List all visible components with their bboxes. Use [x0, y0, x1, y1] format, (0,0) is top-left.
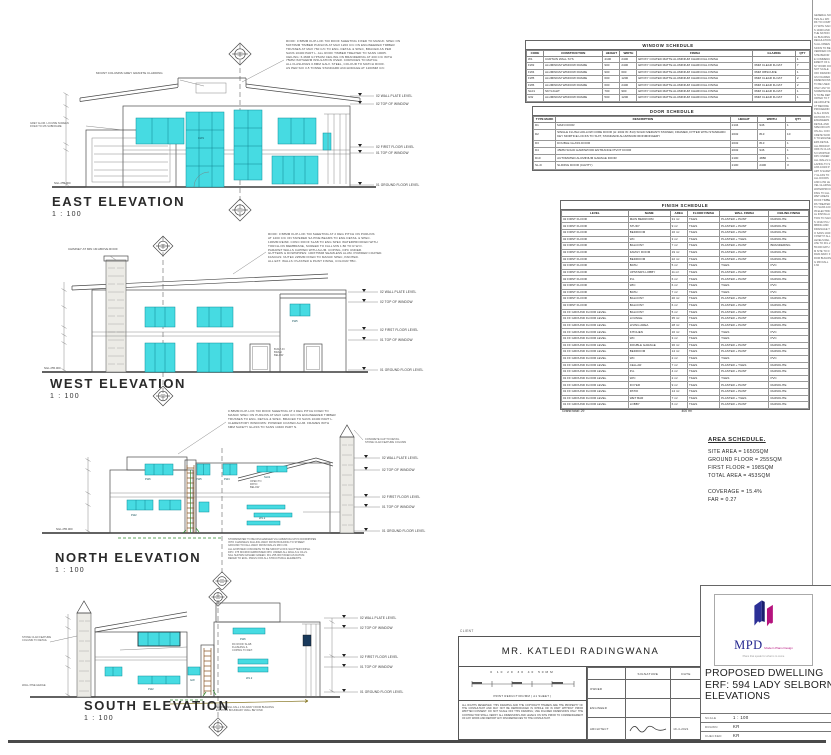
signature-header-row: SIGNATURE DATE — [588, 668, 702, 680]
owner-signature-cell — [625, 680, 671, 699]
drawn-value: KR — [733, 724, 740, 729]
table-cell: 11 m² — [670, 269, 687, 276]
table-cell: TILES — [687, 263, 719, 270]
checked-value: KR — [733, 733, 740, 738]
table-cell: PLASTER + PAINT — [720, 223, 769, 230]
table-cell: 01 FF GROUND FLOOR LEVEL — [562, 355, 629, 362]
table-cell: 5 m² — [670, 309, 687, 316]
north-bottom-notes: STORMWATER TO BE DISCHARGED VIA 110MM DI… — [228, 538, 316, 561]
architect-date: 19-4-2021 — [671, 718, 702, 741]
table-cell: PLASTER + TILES — [720, 362, 769, 369]
table-cell: 02 FIRST FLOOR — [562, 302, 629, 309]
svg-text:01 GROUND FLOOR LEVEL: 01 GROUND FLOOR LEVEL — [360, 690, 403, 694]
table-cell: 02 FIRST FLOOR — [562, 276, 629, 283]
table-cell: 4880 — [758, 155, 786, 162]
table-cell: PLASTER + TILES — [720, 236, 769, 243]
note-line: SITE AREA = 1650SQM — [708, 448, 782, 456]
table-cell: RHINOLITE — [769, 276, 809, 283]
mpd-logo-icon — [747, 598, 781, 628]
table-cell: WIC — [628, 283, 670, 290]
client-label: CLIENT — [460, 629, 474, 633]
table-cell: PLASTER + PAINT — [720, 389, 769, 396]
svg-text:01 TOP OF WINDOW: 01 TOP OF WINDOW — [376, 151, 409, 155]
table-cell: GW — [527, 95, 544, 101]
table-cell: DOUBLE GARAGE — [628, 342, 670, 349]
table-cell: 2032 — [730, 140, 758, 147]
table-cell: RHINOLITE — [769, 216, 809, 223]
finish-total-label: Grand total: 29 — [562, 409, 584, 413]
table-cell: 7 m² — [670, 289, 687, 296]
west-building — [72, 256, 346, 372]
svg-text:02 TOP OF WINDOW: 02 TOP OF WINDOW — [376, 102, 409, 106]
engineer-label: ENGINEER — [588, 699, 626, 718]
table-cell: RHINOLITE — [769, 223, 809, 230]
table-cell: PLASTER + PAINT — [720, 402, 769, 409]
table-cell: 01 FF GROUND FLOOR LEVEL — [562, 402, 629, 409]
svg-text:02 WALL PLATE LEVEL: 02 WALL PLATE LEVEL — [360, 616, 396, 620]
table-cell: PVC — [769, 355, 809, 362]
side-notes-strip: GENERAL NOTES ALL WORK TO COMPLY WITH SA… — [814, 14, 831, 580]
table-cell: 2 m² — [670, 355, 687, 362]
table-cell: PLASTER + PAINT — [720, 322, 769, 329]
table-cell: TILES — [687, 276, 719, 283]
south-mid-note: RC ROOF SLABFLASHING &COPING TO DET. — [232, 643, 253, 653]
table-cell: RHINOLITE — [769, 342, 809, 349]
north-elevation-title: NORTH ELEVATION — [55, 550, 201, 565]
table-cell: 1 — [786, 140, 811, 147]
table-cell: WC — [628, 236, 670, 243]
table-cell: 1200 — [620, 95, 637, 101]
table-cell: TILES — [687, 236, 719, 243]
table-cell: 28 m² — [670, 322, 687, 329]
south-left-note: STONE CLAD FEATURECOLUMN TO DETAIL — [22, 636, 51, 642]
project-line-2: ERF: 594 LADY SELBORNE — [705, 680, 831, 692]
level-marker: 02 FIRST FLOOR LEVEL — [348, 327, 418, 332]
table-cell: PLASTER + PAINT — [720, 256, 769, 263]
note-line: ALL EXT. WALLS: PLASTER & PAINT FINISH, … — [268, 260, 382, 264]
table-cell: RHINOLITE — [769, 269, 809, 276]
table-cell: 6 m² — [670, 283, 687, 290]
table-cell: TILES — [720, 355, 769, 362]
level-marker: 02 TOP OF WINDOW — [324, 625, 393, 630]
table-cell: 2032 — [730, 147, 758, 154]
table-cell: 2400 — [758, 162, 786, 169]
note-line: STONE CLAD FEATURE COLUMN — [365, 441, 406, 444]
table-cell: 946 — [758, 122, 786, 129]
table-cell: UPSTAIRS LOBBY — [628, 269, 670, 276]
east-elevation-panel: CW1 NGL 255.000 02 WALL PLATE LEVEL 02 T… — [28, 38, 468, 230]
logo-name: Modern Plans Design — [764, 646, 793, 650]
window-tag: FW5 — [292, 319, 298, 323]
west-elevation-scale: 1 : 100 — [50, 393, 80, 400]
table-cell: PLASTER + PAINT — [720, 342, 769, 349]
table-cell: PLASTER + PAINT — [720, 309, 769, 316]
table-cell: PLASTER + PAINT — [720, 316, 769, 323]
client-name: MR. KATLEDI RADINGWANA — [459, 637, 702, 667]
table-cell: 14 m² — [670, 349, 687, 356]
table-cell: 14 m² — [670, 389, 687, 396]
table-row: D445MM SOLID HARDWOOD ENTRANCE PIVOT DOO… — [534, 147, 811, 154]
level-marker: 02 WALL PLATE LEVEL — [354, 455, 418, 460]
area-schedule-lines: SITE AREA = 1650SQMGROUND FLOOR = 255SQM… — [708, 448, 782, 504]
note-line: GROUND FLOOR = 255SQM — [708, 456, 782, 464]
table-cell: BEDROOM — [628, 349, 670, 356]
ngl-label: NGL 255.000 — [54, 181, 71, 185]
table-cell: MAIN BEDROOM — [628, 216, 670, 223]
note-line: BELOW — [250, 486, 262, 489]
ngl-label: NGL 255.000 — [56, 527, 73, 531]
table-cell: 9 m² — [670, 382, 687, 389]
table-cell: PLASTER + PAINT — [720, 269, 769, 276]
table-row: D1MAIN DOOR21349461 — [534, 122, 811, 129]
table-row: 02 FIRST FLOORBATH7 m²TILESTILESPVC — [562, 289, 809, 296]
table-cell: W/C — [628, 375, 670, 382]
table-cell: 6 m² — [670, 276, 687, 283]
client-box: MR. KATLEDI RADINGWANA 0 10 20 30 40 50M… — [458, 636, 703, 740]
owner-date-cell — [671, 680, 702, 699]
table-cell: 2032 — [730, 130, 758, 141]
window-schedule: WINDOW SCHEDULE CODECONSTRUCTIONHEIGHTWI… — [525, 40, 811, 103]
table-cell: RHINOLITE — [769, 316, 809, 323]
table-cell: RHINOLITE — [769, 256, 809, 263]
ngl-label: NGL 255.000 — [44, 366, 61, 370]
door-schedule: DOOR SCHEDULE TYPE MARKDESCRIPTIONHEIGHT… — [532, 106, 812, 171]
table-cell: 01 FF GROUND FLOOR LEVEL — [562, 362, 629, 369]
east-elevation-scale: 1 : 100 — [52, 211, 82, 218]
table-row: 02 FIRST FLOORWC3 m²TILESPLASTER + TILES… — [562, 236, 809, 243]
table-cell: TILES — [687, 322, 719, 329]
window-schedule-title: WINDOW SCHEDULE — [526, 41, 810, 50]
table-cell: 31 m² — [670, 216, 687, 223]
table-cell: PVC — [769, 283, 809, 290]
table-cell: D2 — [534, 130, 556, 141]
table-cell: TILES — [687, 230, 719, 237]
svg-text:02 TOP OF WINDOW: 02 TOP OF WINDOW — [360, 626, 393, 630]
table-cell: 01 FF GROUND FLOOR LEVEL — [562, 322, 629, 329]
level-marker: 01 GROUND FLOOR LEVEL — [354, 528, 425, 533]
table-cell: PVC — [769, 329, 809, 336]
north-dim-string — [86, 457, 91, 533]
logo-tagline: Plans that speak for what is to come — [715, 655, 812, 658]
table-cell: FOYER — [628, 382, 670, 389]
table-cell: 01 FF GROUND FLOOR LEVEL — [562, 342, 629, 349]
table-cell: TILES — [687, 402, 719, 409]
signature-table: SIGNATURE DATE OWNER ENGINEER — [587, 667, 702, 739]
table-row: SL-DSLIDING DOOR (CAVITY)210024003 — [534, 162, 811, 169]
window-tag: SL01 — [264, 475, 271, 479]
north-top-notes: 0.58MM KLIP-LOK 700 ROOF SHEETING AT 2 D… — [228, 410, 336, 429]
note-line: FIRST FLOOR = 198SQM — [708, 464, 782, 472]
table-cell: LOBBY — [628, 402, 670, 409]
table-cell: TILES — [687, 382, 719, 389]
table-cell: KITCHEN — [628, 329, 670, 336]
table-cell: 02 FIRST FLOOR — [562, 230, 629, 237]
window-tag: GW — [190, 678, 195, 682]
table-row: 02 FIRST FLOORSTUDY9 m²TILESPLASTER + PA… — [562, 223, 809, 230]
table-cell: TILES — [687, 249, 719, 256]
door-schedule-title: DOOR SCHEDULE — [533, 107, 811, 116]
table-cell: TILES — [720, 336, 769, 343]
table-cell: PLASTER + PAINT — [720, 369, 769, 376]
scale-bar-ruler — [468, 681, 578, 687]
level-marker: 02 FIRST FLOOR LEVEL — [350, 144, 414, 149]
table-cell: TILES — [687, 296, 719, 303]
table-cell: MAIN DOOR — [556, 122, 731, 129]
table-cell: 01 FF GROUND FLOOR LEVEL — [562, 316, 629, 323]
table-cell: 02 FIRST FLOOR — [562, 289, 629, 296]
table-cell: 6 m² — [670, 402, 687, 409]
scale-bar-caption: PRINT REDUCTION/MM ( A1 SHEET ) — [459, 694, 586, 698]
table-cell: 01 FF GROUND FLOOR LEVEL — [562, 349, 629, 356]
south-elevation-panel: FW2 FW6 W1.2 GW 02 WALL PLATE LEVEL 02 T… — [20, 588, 470, 750]
table-cell: 45MM SOLID HARDWOOD ENTRANCE PIVOT DOOR — [556, 147, 731, 154]
svg-text:02 FIRST FLOOR LEVEL: 02 FIRST FLOOR LEVEL — [360, 655, 398, 659]
table-cell: 2100 — [730, 155, 758, 162]
table-cell: 36 m² — [670, 342, 687, 349]
window-tag: FW2 — [148, 687, 154, 691]
window-tag: W1.2 — [246, 676, 253, 680]
table-row: 01 FF GROUND FLOOR LEVELWC2 m²TILESTILES… — [562, 355, 809, 362]
table-cell: 01 FF GROUND FLOOR LEVEL — [562, 382, 629, 389]
level-marker: 01 TOP OF WINDOW — [348, 337, 413, 342]
svg-text:02 TOP OF WINDOW: 02 TOP OF WINDOW — [382, 468, 415, 472]
table-cell: BEDROOM — [628, 256, 670, 263]
table-cell: 20 m² — [670, 296, 687, 303]
table-cell: 19 m² — [670, 249, 687, 256]
table-cell: BALCONY — [628, 302, 670, 309]
table-cell: 02 FIRST FLOOR — [562, 283, 629, 290]
project-title: PROPOSED DWELLING ERF: 594 LADY SELBORNE… — [705, 668, 831, 703]
table-row: 02 FIRST FLOORMAIN BEDROOM31 m²TILESPLAS… — [562, 216, 809, 223]
table-cell: STUDY — [628, 223, 670, 230]
table-cell: RHINOLITE — [769, 402, 809, 409]
svg-text:02 FIRST FLOOR LEVEL: 02 FIRST FLOOR LEVEL — [380, 328, 418, 332]
table-cell: PLASTER + PAINT — [720, 243, 769, 250]
table-cell: 7 m² — [670, 395, 687, 402]
table-row: 01 FF GROUND FLOOR LEVELFOYER9 m²TILESPL… — [562, 382, 809, 389]
level-marker: 02 WALL PLATE LEVEL — [324, 615, 396, 620]
table-cell: 16 m² — [670, 329, 687, 336]
table-row: 01 FF GROUND FLOOR LEVELLIVING AREA28 m²… — [562, 322, 809, 329]
west-callout: CHIMNEY AT MIN 1M ABOVE ROOF — [68, 247, 118, 251]
table-cell: AUTOMATED ALUMINIUM GARAGE DOOR — [556, 155, 731, 162]
level-marker: 02 FIRST FLOOR LEVEL — [324, 654, 398, 659]
table-cell: 1 — [795, 95, 809, 101]
table-cell: P.A. — [628, 369, 670, 376]
checked-label: CHECKED — [705, 734, 722, 738]
east-notes: ROOF: 0.58MM KLIP-LOK 700 ROOF SHEETING … — [286, 40, 400, 71]
table-row: 02 FIRST FLOORBEDROOM16 m²TILESPLASTER +… — [562, 230, 809, 237]
note-line: COPING TO DET. — [232, 649, 253, 652]
svg-text:01 TOP OF WINDOW: 01 TOP OF WINDOW — [360, 665, 393, 669]
finish-total-area: 400 m² — [682, 409, 693, 413]
table-row: 01 FF GROUND FLOOR LEVELW/C2 m²TILESTILE… — [562, 375, 809, 382]
table-cell: TILES — [687, 302, 719, 309]
table-cell: TILES — [720, 329, 769, 336]
print-scale-cell: 0 10 20 30 40 50MM PRINT REDUCTION/MM ( … — [459, 667, 587, 739]
level-marker: 02 TOP OF WINDOW — [354, 467, 415, 472]
east-elevation-title: EAST ELEVATION — [52, 194, 185, 209]
scale-value: 1 : 100 — [733, 715, 749, 720]
table-row: 02 FIRST FLOORBEDROOM22 m²TILESPLASTER +… — [562, 256, 809, 263]
table-cell: BATH — [628, 263, 670, 270]
table-cell: RHINOLITE — [769, 389, 809, 396]
table-cell: 01 FF GROUND FLOOR LEVEL — [562, 329, 629, 336]
table-cell: 35 m² — [670, 316, 687, 323]
table-cell: WC — [628, 336, 670, 343]
table-row: D10AUTOMATED ALUMINIUM GARAGE DOOR210048… — [534, 155, 811, 162]
table-cell: 10 — [786, 130, 811, 141]
engineer-signature-cell — [625, 699, 671, 718]
table-cell: 2 m² — [670, 375, 687, 382]
table-row: GWALUMINIUM WINDOW FRAME5001200EPOXY COA… — [527, 95, 810, 101]
table-cell: TILES — [687, 349, 719, 356]
table-cell: 813 — [758, 130, 786, 141]
table-cell: 7 m² — [670, 362, 687, 369]
table-cell: PLASTER + PAINT — [720, 230, 769, 237]
table-cell: 1 — [786, 147, 811, 154]
table-cell: TILES — [687, 216, 719, 223]
west-dim-string — [62, 282, 67, 372]
note-line: FIXED TO MS SUBFRAME — [30, 125, 69, 128]
table-cell: PVC — [769, 375, 809, 382]
west-notes: ROOF: 0.58MM KLIP-LOK 700 SHEETING AT 2 … — [268, 233, 382, 264]
table-cell: PLASTER + PAINT — [720, 249, 769, 256]
table-cell: TILES — [687, 223, 719, 230]
table-cell: 01 FF GROUND FLOOR LEVEL — [562, 389, 629, 396]
table-row: 02 FIRST FLOORUPSTAIRS LOBBY11 m²TILESPL… — [562, 269, 809, 276]
engineer-date-cell — [671, 699, 702, 718]
table-row: 02 FIRST FLOORFAMILY ROOM19 m²TILESPLAST… — [562, 249, 809, 256]
drawing-sheet: CW1 NGL 255.000 02 WALL PLATE LEVEL 02 T… — [0, 0, 831, 755]
table-cell: 01 FF GROUND FLOOR LEVEL — [562, 375, 629, 382]
table-row: 01 FF GROUND FLOOR LEVELPATIO14 m²TILESP… — [562, 389, 809, 396]
table-cell: RHINOLITE — [769, 382, 809, 389]
table-cell: D1 — [534, 122, 556, 129]
window-tag: W1.2 — [259, 516, 266, 520]
table-cell: TILES — [687, 369, 719, 376]
svg-text:02 FIRST FLOOR LEVEL: 02 FIRST FLOOR LEVEL — [376, 145, 414, 149]
note-line: TOTAL AREA = 453SQM — [708, 472, 782, 480]
table-cell: PVC — [769, 263, 809, 270]
empty-header — [588, 668, 626, 680]
table-cell: 02 FIRST FLOOR — [562, 269, 629, 276]
table-row: 02 FIRST FLOORBATH5 m²TILESTILESPVC — [562, 263, 809, 270]
table-cell: PLASTER + TILES — [720, 395, 769, 402]
finish-schedule-title: FINISH SCHEDULE — [561, 201, 809, 210]
table-cell: TILES — [687, 289, 719, 296]
table-cell: 02 FIRST FLOOR — [562, 223, 629, 230]
south-building — [77, 601, 320, 697]
table-cell: 813 — [758, 140, 786, 147]
sheet-right-border — [812, 0, 813, 585]
svg-text:01 GROUND FLOOR LEVEL: 01 GROUND FLOOR LEVEL — [376, 183, 419, 187]
table-cell: 6 m² — [670, 302, 687, 309]
table-cell: RHINOLITE — [769, 249, 809, 256]
scale-bar-numbers: 0 10 20 30 40 50MM — [459, 670, 586, 674]
owner-row: OWNER — [588, 680, 702, 699]
table-row: 01 FF GROUND FLOOR LEVELWC3 m²TILESTILES… — [562, 336, 809, 343]
table-cell: TILES — [720, 263, 769, 270]
table-cell: 2100 — [730, 162, 758, 169]
sheet-bottom-border — [8, 740, 826, 743]
table-cell: 01 FF GROUND FLOOR LEVEL — [562, 395, 629, 402]
table-cell: 02 FIRST FLOOR — [562, 216, 629, 223]
table-cell: 02 FIRST FLOOR — [562, 256, 629, 263]
table-cell: PLASTER + PAINT — [720, 349, 769, 356]
signature-scribble — [628, 723, 668, 735]
note-line: FAR = 0.27 — [708, 496, 782, 504]
table-cell: PLASTER + PAINT — [720, 382, 769, 389]
svg-text:01 TOP OF WINDOW: 01 TOP OF WINDOW — [382, 505, 415, 509]
table-cell: 2134 — [730, 122, 758, 129]
note-line: BELOW — [274, 354, 284, 357]
table-cell: RHINOLITE — [769, 322, 809, 329]
level-marker: 01 TOP OF WINDOW — [350, 150, 409, 155]
architect-row: ARCHITECT 19-4-2021 — [588, 718, 702, 741]
window-tag: FW4 — [224, 477, 230, 481]
table-cell: 500 — [603, 95, 620, 101]
table-row: 02 FIRST FLOORBALCONY6 m²TILESPLASTER + … — [562, 302, 809, 309]
level-marker: 02 TOP OF WINDOW — [348, 299, 413, 304]
table-row: 01 FF GROUND FLOOR LEVELBALCONY5 m²TILES… — [562, 309, 809, 316]
table-cell: TILES — [687, 389, 719, 396]
south-elevation-scale: 1 : 100 — [84, 715, 114, 722]
table-row: 02 FIRST FLOORBALCONY7 m²TILESPLASTER + … — [562, 243, 809, 250]
table-cell: FAMILY ROOM — [628, 249, 670, 256]
scale-label: SCALE — [705, 716, 716, 720]
level-marker: 02 FIRST FLOOR LEVEL — [354, 494, 420, 499]
note-line: COLUMN TO DETAIL — [22, 639, 51, 642]
table-cell: 01 FF GROUND FLOOR LEVEL — [562, 369, 629, 376]
window-tag: CW1 — [198, 136, 204, 140]
level-marker: 02 WALL PLATE LEVEL — [350, 93, 412, 98]
svg-text:02 WALL PLATE LEVEL: 02 WALL PLATE LEVEL — [382, 456, 418, 460]
north-right-note: OPEN TOPATIOBELOW — [250, 480, 262, 490]
south-elevation-drawing: FW2 FW6 W1.2 GW 02 WALL PLATE LEVEL 02 T… — [20, 588, 470, 750]
table-row: 01 FF GROUND FLOOR LEVELLOBBY6 m²TILESPL… — [562, 402, 809, 409]
table-cell: SL-D — [534, 162, 556, 169]
table-cell: ALUMINIUM WINDOW FRAME — [543, 95, 602, 101]
table-cell: BALCONY — [628, 243, 670, 250]
logo-box: MPDModern Plans Design Plans that speak … — [714, 594, 813, 666]
east-left-note: GREY ALUM. LOUVRE SCREENFIXED TO MS SUBF… — [30, 122, 69, 128]
south-elevation-title: SOUTH ELEVATION — [84, 698, 230, 713]
table-row: D3DOUBLE GLASS DOOR20328131 — [534, 140, 811, 147]
window-tag: FW6 — [240, 637, 246, 641]
table-cell: CELLAR — [628, 362, 670, 369]
table-cell: RHINOLITE — [769, 349, 809, 356]
table-row: 01 FF GROUND FLOOR LEVELCELLAR7 m²TILESP… — [562, 362, 809, 369]
table-cell: 02 FIRST FLOOR — [562, 236, 629, 243]
table-cell: TILES — [720, 289, 769, 296]
window-tag: FW2 — [131, 513, 137, 517]
table-row: 01 FF GROUND FLOOR LEVELWET BAR7 m²TILES… — [562, 395, 809, 402]
table-cell: RHINOLITE — [769, 395, 809, 402]
table-cell: TILES — [720, 283, 769, 290]
table-cell: TILES — [687, 362, 719, 369]
table-cell: DOUBLE GLASS DOOR — [556, 140, 731, 147]
table-row: 01 FF GROUND FLOOR LEVELBEDROOM14 m²TILE… — [562, 349, 809, 356]
note-line: AS PER SOI 3-5 TONNE STANDARD ANCHORAGE … — [286, 67, 400, 71]
table-cell: BALCONY — [628, 296, 670, 303]
table-cell: EPOXY COATED MATTE ALUMINIUM CHARCOAL FI… — [637, 95, 753, 101]
west-elevation-title: WEST ELEVATION — [50, 376, 186, 391]
table-cell: D3 — [534, 140, 556, 147]
table-row: 02 FIRST FLOORBALCONY20 m²TILESPLASTER +… — [562, 296, 809, 303]
svg-text:02 WALL PLATE LEVEL: 02 WALL PLATE LEVEL — [376, 94, 412, 98]
area-schedule-title: AREA SCHEDULE. — [708, 437, 782, 443]
